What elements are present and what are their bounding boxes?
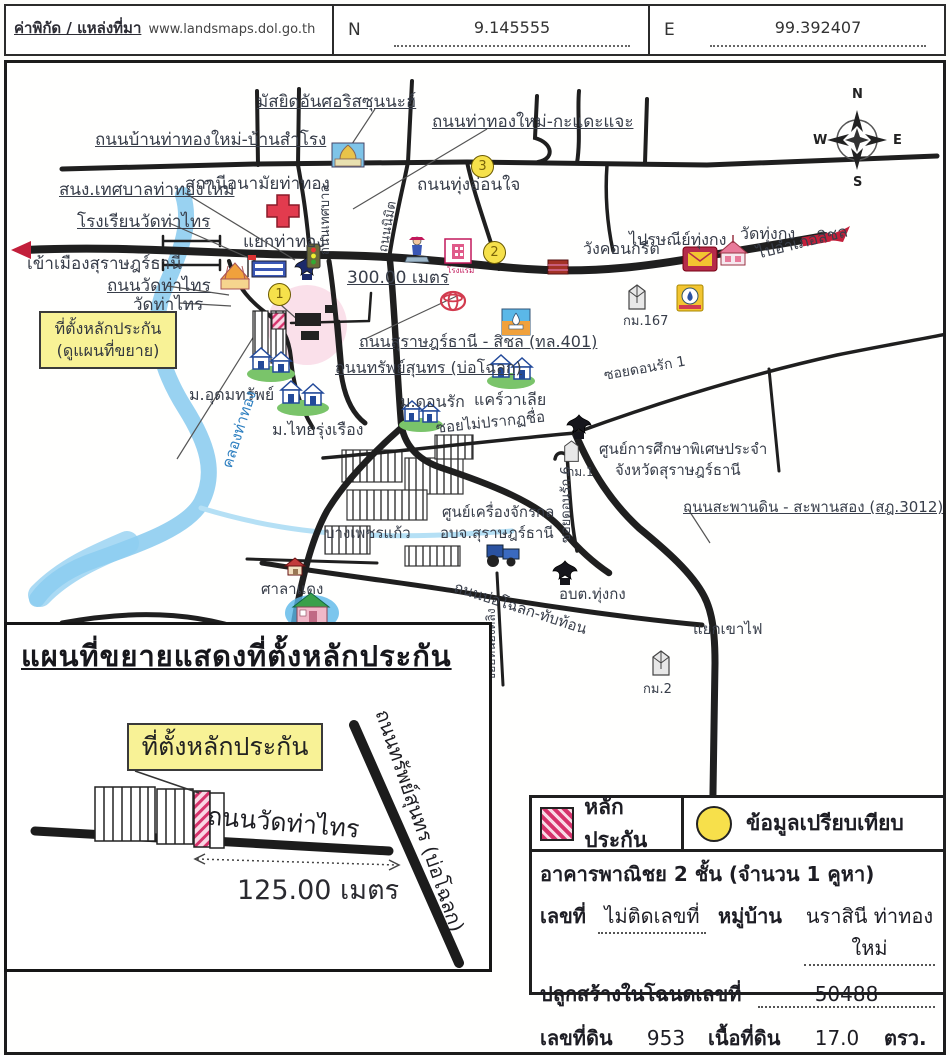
health-station-icon: [267, 195, 299, 227]
deed-row: ปลูกสร้างในโฉนดเลขที่ 50488: [532, 974, 943, 1010]
village-value: นราสินี ท่าทองใหม่: [804, 900, 935, 966]
farmer-statue-icon: [405, 237, 429, 262]
comparison-circle-swatch: [696, 806, 732, 842]
collateral-callout-line1: ที่ตั้งหลักประกัน: [55, 318, 162, 340]
garuda-obt-thungkong-icon: [553, 561, 577, 585]
label-road-watthasai: ถนนวัดท่าไทร: [107, 277, 211, 296]
label-road-sapsunthon: ถนนทรัพย์สุนทร (บ่อโฉลก): [335, 359, 522, 377]
km1-marker-icon: [565, 441, 579, 461]
label-obt-thungkong: อบต.ทุ่งกง: [559, 586, 626, 603]
label-soi-donrak6: ซอยดอนรัก 6: [560, 466, 574, 543]
area-unit: ตรว.: [884, 1022, 927, 1054]
legend-comparison-cell: ข้อมูลเปรียบเทียบ: [684, 806, 943, 842]
building-description-row: อาคารพาณิชย 2 ชั้น (จำนวน 1 คูหา): [532, 852, 943, 890]
label-km2: กม.2: [643, 683, 672, 697]
house-no-value: ไม่ติดเลขที่: [598, 900, 706, 934]
address-row: เลขที่ ไม่ติดเลขที่ หมู่บ้าน นราสินี ท่า…: [532, 896, 943, 966]
legend-collateral-label: หลักประกัน: [584, 791, 681, 857]
label-carevalia: แคร์วาเลีย: [474, 391, 546, 409]
label-health-station: สถานีอนามัยท่าทอง: [185, 175, 330, 194]
east-coordinate-cell: E 99.392407: [650, 6, 944, 54]
east-label: E: [664, 20, 675, 40]
compass-east: E: [893, 133, 902, 148]
marker-3: 3: [471, 155, 494, 178]
label-road-banthathong: ถนนบ้านท่าทองใหม่-บ้านสำโรง: [95, 131, 326, 150]
deed-label: ปลูกสร้างในโฉนดเลขที่: [540, 978, 758, 1010]
label-km167: กม.167: [623, 315, 668, 329]
wang-concrete-icon: [548, 260, 568, 274]
label-saladaeng: ศาลาแดง: [261, 581, 323, 598]
label-enter-surat: เข้าเมืองสุราษฎร์ธานี: [27, 255, 182, 274]
label-mosque: มัสยิดอันศอริสซุนนะฮ์: [257, 93, 416, 112]
mosque-icon: [332, 143, 364, 167]
inset-shophouses: [95, 787, 224, 848]
parcel-no-value: 953: [632, 1026, 700, 1050]
parcel-row: เลขที่ดิน 953 เนื้อที่ดิน 17.0 ตรว.: [532, 1018, 943, 1054]
house-no-label: เลขที่: [540, 900, 598, 932]
collateral-callout-line2: (ดูแผนที่ขยาย): [57, 340, 160, 362]
parcel-label: เลขที่ดิน: [540, 1022, 632, 1054]
legend-key-row: หลักประกัน ข้อมูลเปรียบเทียบ: [532, 798, 943, 852]
tractor-icon: [487, 545, 519, 567]
legend-collateral-cell: หลักประกัน: [532, 798, 684, 849]
label-machinery2: อบจ.สุราษฎร์ธานี: [440, 525, 554, 542]
label-yaek-thathong: แยกท่าทอง: [243, 233, 325, 252]
marker-1: 1: [268, 283, 291, 306]
label-road-401: ถนนสุราษฎร์ธานี - สิชล (ทล.401): [359, 333, 597, 351]
post-office-icon: [683, 247, 717, 271]
compass-south: S: [853, 175, 862, 190]
building-description: อาคารพาณิชย 2 ชั้น (จำนวน 1 คูหา): [540, 862, 874, 886]
toyota-dealer-icon: [441, 292, 465, 310]
hotel-icon: [445, 239, 471, 263]
coordinates-header: ค่าพิกัด / แหล่งที่มา www.landsmaps.dol.…: [4, 4, 946, 56]
label-machinery1: ศูนย์เครื่องจักรกล: [442, 504, 554, 521]
km2-marker-icon: [653, 651, 669, 675]
label-mu-udomsap: ม.อุดมทรัพย์: [189, 386, 274, 404]
marker-2: 2: [483, 241, 506, 264]
label-road-thungonjai: ถนนทุ่งอ่อนใจ: [417, 176, 520, 195]
label-yaek-khaofai: แยกเขาไฟ: [693, 621, 763, 638]
legend-comparison-label: ข้อมูลเปรียบเทียบ: [746, 807, 904, 840]
label-special-edu1: ศูนย์การศึกษาพิเศษประจำ: [599, 441, 767, 458]
label-road-kadaejae: ถนนท่าทองใหม่-กะแดะแจะ: [432, 113, 633, 132]
collateral-hatch-swatch: [540, 807, 574, 841]
inset-enlarged-map: แผนที่ขยายแสดงที่ตั้งหลักประกัน: [4, 622, 492, 972]
compass-north: N: [852, 87, 863, 102]
label-hotel-caption: โรงแรม: [447, 267, 474, 276]
label-wang-concrete: วังคอนกรีต: [583, 240, 660, 258]
area-label: เนื้อที่ดิน: [708, 1022, 804, 1054]
land-map-document: ค่าพิกัด / แหล่งที่มา www.landsmaps.dol.…: [0, 0, 950, 1055]
area-value: 17.0: [804, 1026, 870, 1050]
label-road-thesaban: ถนนเทศบาล: [319, 185, 333, 255]
legend-table: หลักประกัน ข้อมูลเปรียบเทียบ อาคารพาณิชย…: [529, 795, 946, 995]
source-label: ค่าพิกัด / แหล่งที่มา: [14, 19, 141, 37]
north-coordinate-cell: N 9.145555: [334, 6, 650, 54]
village-label: หมู่บ้าน: [718, 900, 804, 932]
inset-collateral-label: ที่ตั้งหลักประกัน: [127, 723, 323, 771]
label-300m: 300.00 เมตร: [347, 269, 449, 288]
temple-tent-icon: [221, 263, 249, 289]
km167-marker-icon: [629, 285, 645, 309]
north-value: 9.145555: [394, 18, 630, 47]
label-road-saphandin: ถนนสะพานดิน - สะพานสอง (สฎ.3012): [683, 499, 943, 516]
inset-distance-label: 125.00 เมตร: [237, 868, 399, 911]
source-url: www.landsmaps.dol.go.th: [148, 22, 315, 37]
label-special-edu2: จังหวัดสุราษฎร์ธานี: [615, 462, 741, 479]
deed-no-value: 50488: [758, 982, 935, 1008]
compass-west: W: [813, 133, 827, 148]
gas-station-icon: [677, 285, 703, 311]
label-school-watthasai: โรงเรียนวัดท่าไทร: [77, 213, 210, 232]
source-cell: ค่าพิกัด / แหล่งที่มา www.landsmaps.dol.…: [6, 6, 334, 54]
label-mu-donrak: ม.ดอนรัก: [400, 393, 465, 411]
label-mu-thairungruang: ม.ไทยรุ่งเรือง: [272, 421, 364, 439]
north-label: N: [348, 20, 361, 40]
collateral-callout-box: ที่ตั้งหลักประกัน (ดูแผนที่ขยาย): [39, 311, 177, 369]
east-value: 99.392407: [710, 18, 926, 47]
label-bang-phetkaew: บางเพชรแก้ว: [325, 525, 411, 542]
